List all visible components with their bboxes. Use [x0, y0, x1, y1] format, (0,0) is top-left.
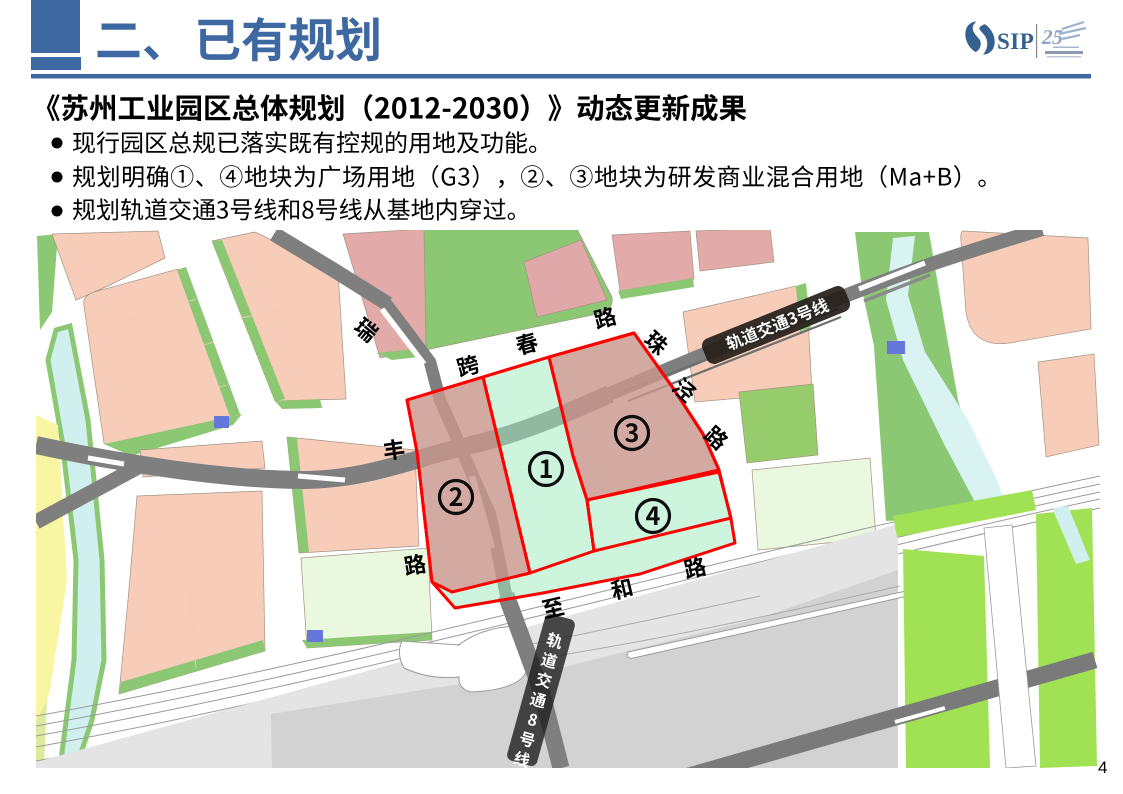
svg-text:SIP: SIP [997, 29, 1034, 54]
svg-text:4: 4 [1098, 758, 1107, 777]
svg-text:25: 25 [1040, 25, 1066, 49]
